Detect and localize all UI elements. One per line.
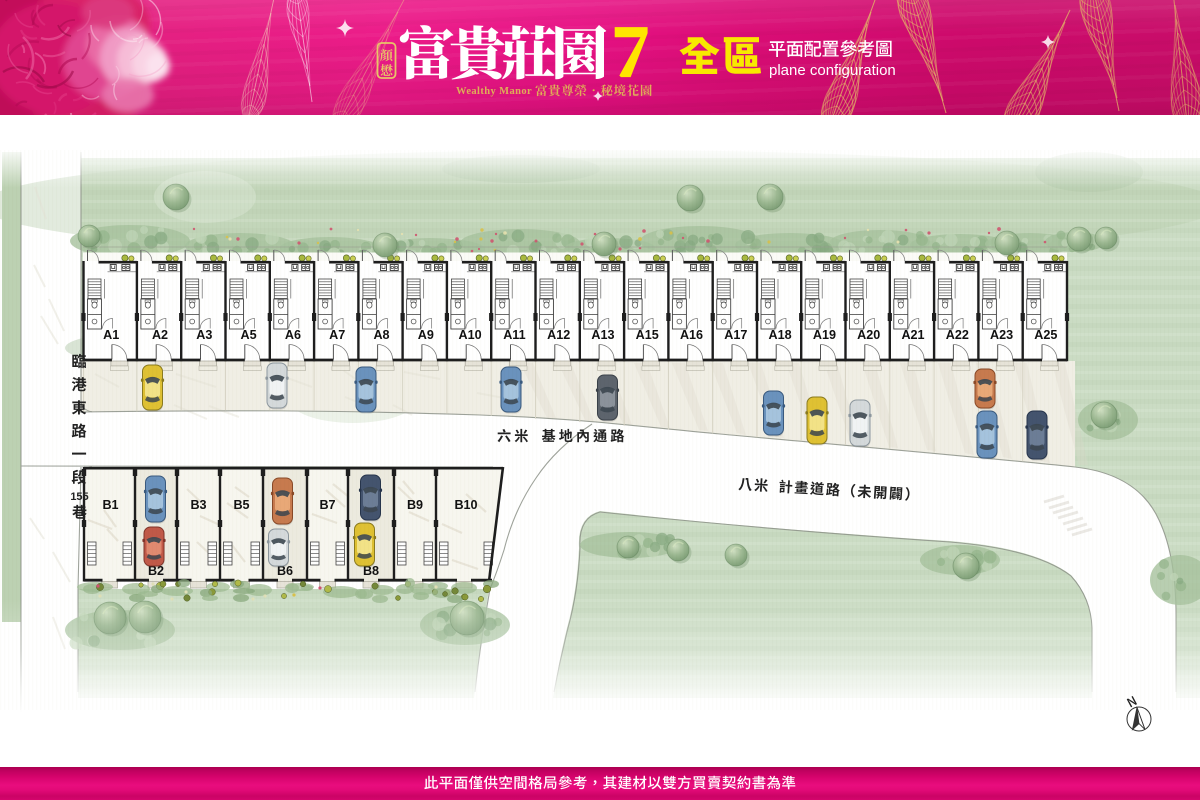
svg-text:Wealthy Manor: Wealthy Manor bbox=[456, 86, 532, 97]
svg-text:plane configuration: plane configuration bbox=[769, 62, 896, 79]
